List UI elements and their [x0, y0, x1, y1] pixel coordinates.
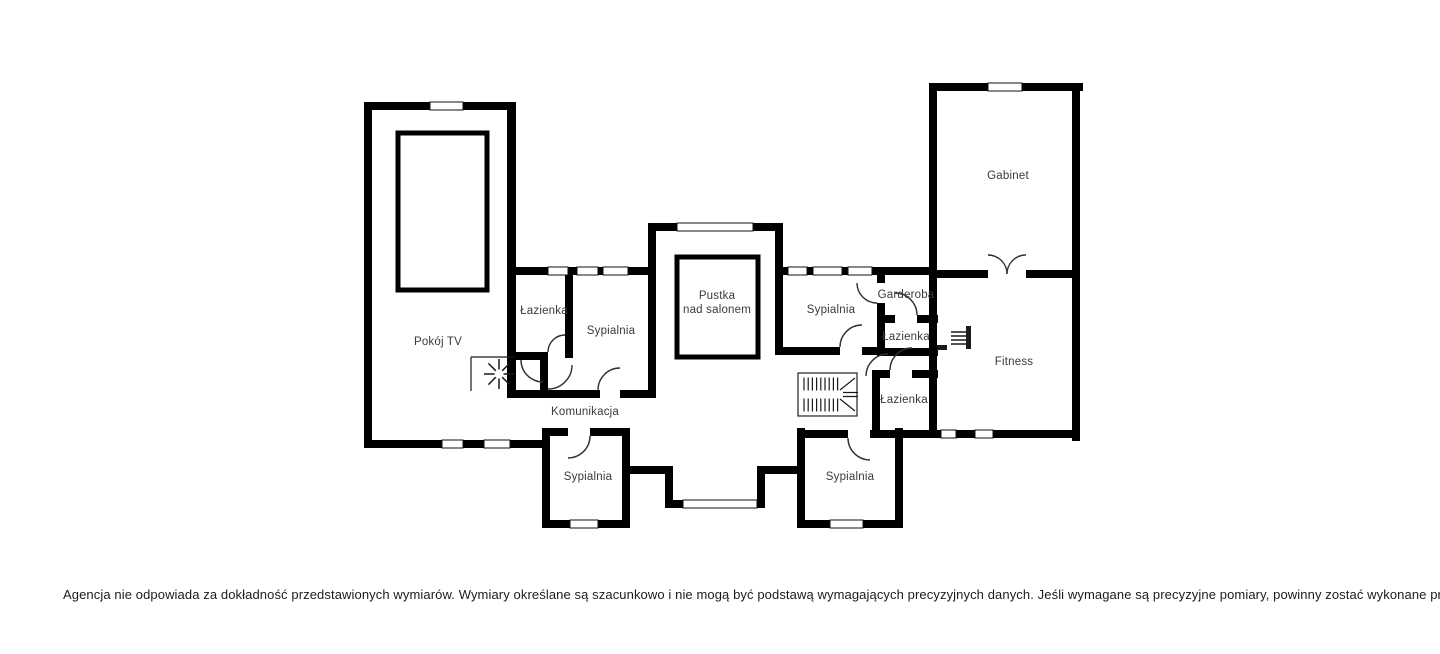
room-label-sypialnia-center: Sypialnia [807, 303, 855, 317]
room-label-sypialnia-bottom-right: Sypialnia [826, 470, 874, 484]
double-door-arc-icon [988, 255, 1007, 274]
wall-segment [1072, 83, 1080, 441]
window-icon [548, 267, 568, 275]
window-icon [788, 267, 807, 275]
wall-segment [862, 347, 877, 355]
wall-segment [513, 352, 548, 360]
window-icon [988, 83, 1022, 91]
window-icon [677, 223, 753, 231]
wall-segment [797, 520, 830, 528]
window-icon [975, 430, 993, 438]
room-label-pustka-line1: Pustka [683, 289, 751, 303]
door-arc-icon [548, 365, 572, 389]
wall-segment [648, 223, 656, 398]
room-label-pustka-line2: nad salonem [683, 303, 751, 317]
wall-segment [872, 370, 890, 378]
double-door-arc-icon [1007, 255, 1026, 274]
wall-segment [956, 430, 975, 438]
room-label-lazienka-left: Łazienka [520, 304, 568, 318]
wall-segment [540, 360, 548, 390]
window-icon [941, 430, 956, 438]
wall-segment [877, 315, 895, 323]
wall-segment [929, 270, 988, 278]
wall-segment [993, 430, 1080, 438]
room-label-pustka-nad-salonem: Pustka nad salonem [683, 289, 751, 317]
room-label-fitness: Fitness [995, 355, 1033, 369]
floor-plan-page: Pokój TV Łazienka Sypialnia Pustka nad s… [0, 0, 1440, 654]
wall-segment [797, 428, 805, 528]
wall-segment [542, 520, 570, 528]
wall-segment [872, 370, 880, 430]
window-icon [848, 267, 872, 275]
floor-plan-drawing [0, 0, 1440, 654]
window-icon [577, 267, 598, 275]
door-arc-icon [568, 436, 590, 458]
door-arc-icon [548, 335, 565, 352]
tv-room-inner-outline [398, 133, 487, 290]
window-icon [442, 440, 463, 448]
wall-segment [1026, 270, 1072, 278]
window-icon [830, 520, 863, 528]
door-arc-icon [857, 283, 877, 303]
door-arc-icon [848, 438, 870, 460]
stairs-icon [798, 373, 858, 416]
room-label-sypialnia-left: Sypialnia [587, 324, 635, 338]
room-label-sypialnia-bottom-left: Sypialnia [564, 470, 612, 484]
radiator-icon [937, 326, 971, 350]
room-label-pokoj-tv: Pokój TV [414, 335, 462, 349]
room-label-lazienka-bottom-right: Łazienka [880, 393, 928, 407]
window-icon [484, 440, 510, 448]
room-label-lazienka-top-right: Łazienka [882, 330, 930, 344]
wall-segment [877, 267, 885, 283]
door-arc-icon [598, 368, 620, 390]
disclaimer-text: Agencja nie odpowiada za dokładność prze… [63, 587, 1440, 602]
door-arc-icon [521, 360, 543, 382]
wall-segment [598, 520, 630, 528]
wall-segment [775, 223, 783, 355]
room-label-garderoba: Garderoba [878, 288, 935, 302]
wall-segment [665, 500, 683, 508]
wall-segment [870, 430, 941, 438]
wall-segment [622, 428, 630, 528]
room-label-komunikacja: Komunikacja [551, 405, 619, 419]
window-icon [570, 520, 598, 528]
wall-segment [508, 390, 600, 398]
wall-segment [542, 428, 568, 436]
door-arc-icon [840, 325, 862, 347]
wall-segment [542, 428, 550, 528]
room-label-gabinet: Gabinet [987, 169, 1029, 183]
window-icon [683, 500, 757, 508]
wall-segment [775, 347, 840, 355]
wall-segment [863, 520, 903, 528]
wall-segment [929, 83, 937, 438]
window-icon [603, 267, 628, 275]
wall-segment [364, 102, 372, 448]
window-icon [813, 267, 842, 275]
wall-segment [895, 428, 903, 528]
window-icon [430, 102, 463, 110]
